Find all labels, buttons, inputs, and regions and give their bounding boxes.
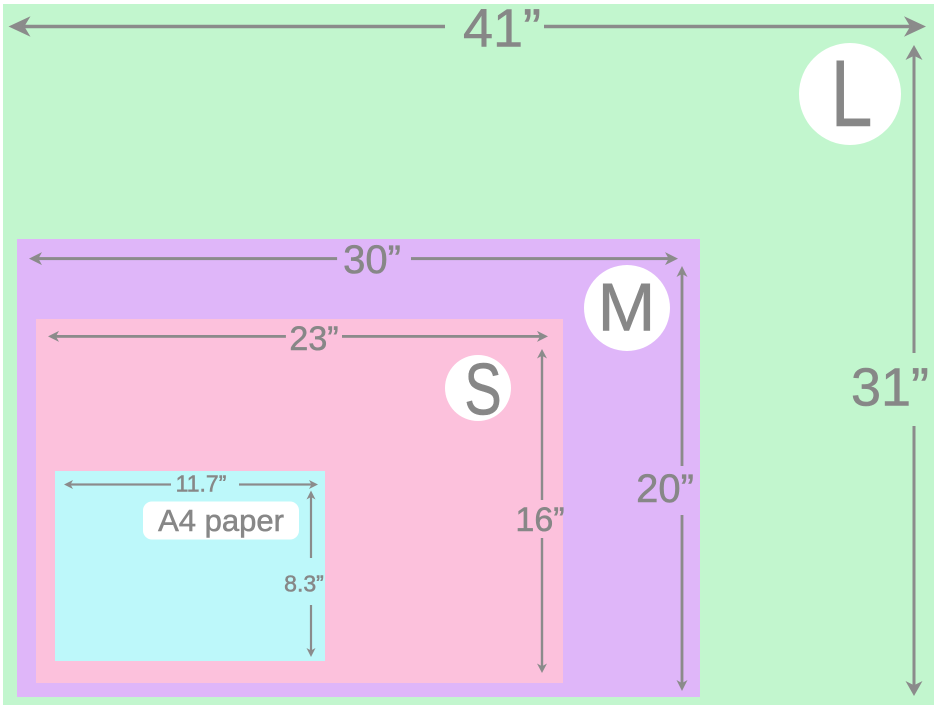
svg-text:M: M [598,270,656,346]
svg-text:20”: 20” [636,467,694,511]
svg-text:S: S [464,350,502,431]
svg-text:41”: 41” [463,0,541,59]
svg-text:L: L [831,41,873,147]
svg-text:A4 paper: A4 paper [158,503,284,538]
svg-text:16”: 16” [515,501,564,539]
svg-text:23”: 23” [289,320,338,358]
svg-text:30”: 30” [343,238,401,282]
svg-text:31”: 31” [851,358,929,418]
svg-text:11.7”: 11.7” [176,471,227,497]
svg-text:8.3”: 8.3” [284,571,324,597]
